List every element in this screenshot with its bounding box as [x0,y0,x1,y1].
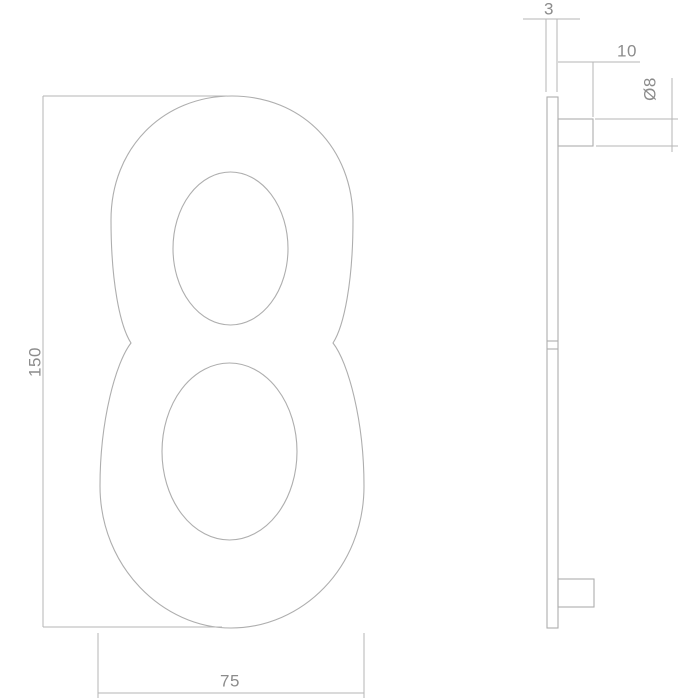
thickness-dimension: 3 [523,0,580,92]
top-mounting-pin [558,119,593,146]
side-view: 3 10 Ø8 [523,0,678,628]
pin-length-dimension: 10 [558,42,640,118]
drawing-canvas: 150 75 3 [0,0,700,700]
bottom-mounting-pin [558,579,594,607]
width-dimension-label: 75 [220,672,240,691]
height-dimension: 150 [26,96,228,627]
numeral-8-lower-counter [162,363,297,540]
pin-diameter-dimension: Ø8 [595,77,678,152]
plate-profile [547,97,558,628]
height-dimension-label: 150 [26,347,45,377]
width-dimension: 75 [98,633,364,698]
front-view: 150 75 [26,96,365,698]
technical-drawing: 150 75 3 [0,0,700,700]
thickness-dimension-label: 3 [544,0,554,19]
pin-diameter-dimension-label: Ø8 [641,77,660,101]
numeral-8-upper-counter [173,172,288,325]
numeral-8-outer-contour [100,96,364,628]
pin-length-dimension-label: 10 [617,42,637,61]
